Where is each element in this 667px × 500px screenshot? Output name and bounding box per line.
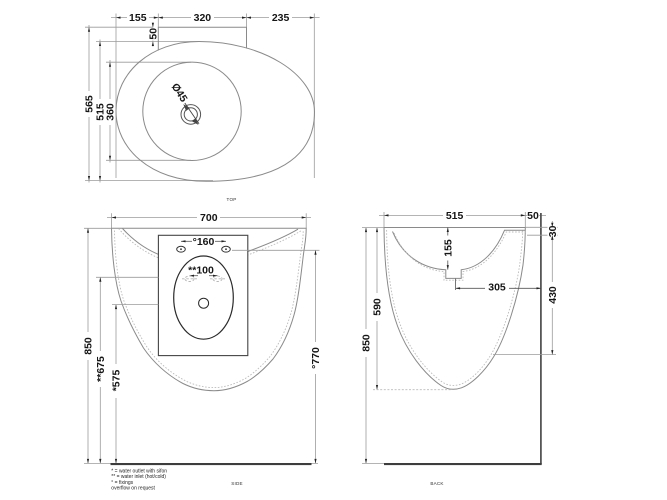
svg-text:430: 430 <box>547 286 559 304</box>
svg-text:320: 320 <box>194 12 212 24</box>
svg-text:305: 305 <box>488 281 506 293</box>
svg-text:*575: *575 <box>111 370 123 392</box>
svg-text:700: 700 <box>200 212 218 224</box>
svg-text:overflow on request: overflow on request <box>111 486 155 492</box>
svg-text:235: 235 <box>272 12 290 24</box>
svg-text:590: 590 <box>372 298 384 316</box>
svg-text:50: 50 <box>527 210 539 222</box>
svg-text:SIDE: SIDE <box>231 481 243 486</box>
svg-text:515: 515 <box>446 210 464 222</box>
svg-text:155: 155 <box>442 239 454 257</box>
svg-text:°160: °160 <box>193 236 215 248</box>
svg-text:BACK: BACK <box>430 481 444 486</box>
svg-text:**100: **100 <box>188 265 214 277</box>
svg-text:850: 850 <box>361 334 373 352</box>
svg-text:360: 360 <box>105 103 117 121</box>
svg-text:30: 30 <box>547 225 559 237</box>
svg-text:**675: **675 <box>95 356 107 382</box>
svg-text:155: 155 <box>129 12 147 24</box>
svg-text:850: 850 <box>83 337 95 355</box>
svg-text:TOP: TOP <box>227 197 237 202</box>
svg-text:°770: °770 <box>310 347 322 369</box>
